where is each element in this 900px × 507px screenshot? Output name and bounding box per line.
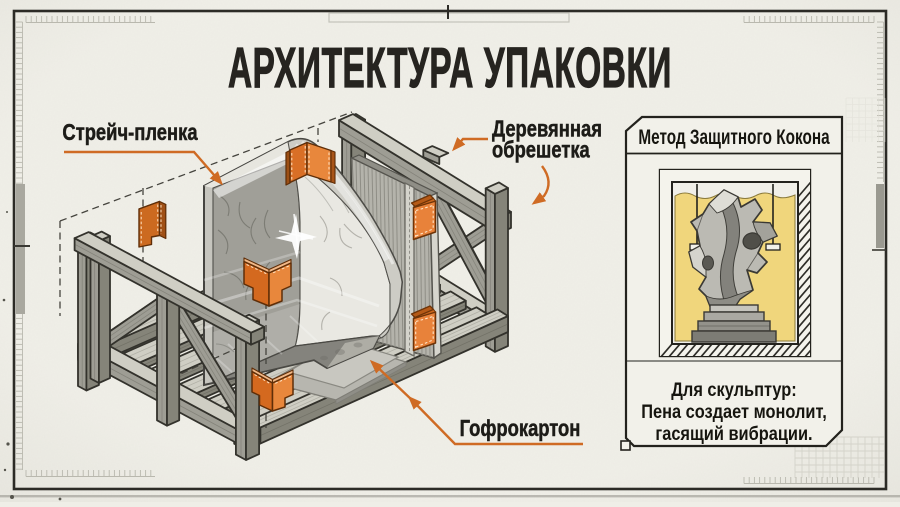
svg-text:Метод Защитного Кокона: Метод Защитного Кокона [638,125,830,149]
svg-text:Пена создает монолит,: Пена создает монолит, [641,401,827,423]
svg-text:Гофрокартон: Гофрокартон [460,416,581,441]
svg-text:АРХИТЕКТУРА УПАКОВКИ: АРХИТЕКТУРА УПАКОВКИ [228,36,672,99]
svg-text:Для скульптур:: Для скульптур: [671,379,796,401]
svg-text:гасящий вибрации.: гасящий вибрации. [655,423,812,445]
svg-text:обрешетка: обрешетка [492,138,590,163]
svg-text:Стрейч-пленка: Стрейч-пленка [62,120,198,145]
